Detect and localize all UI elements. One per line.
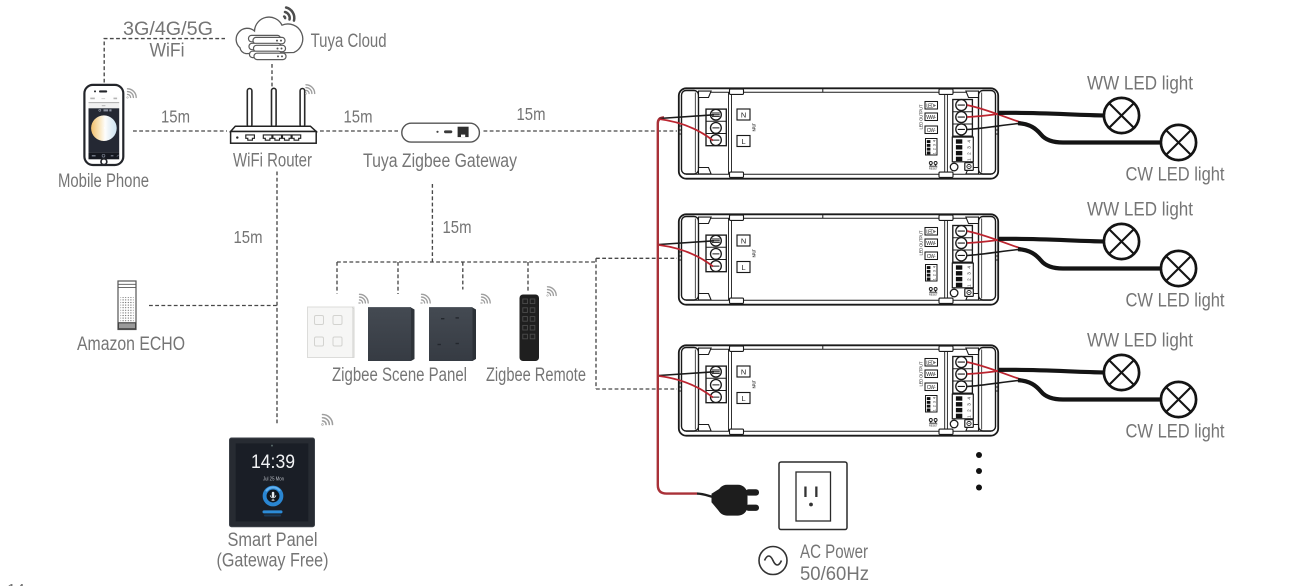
svg-text:15m: 15m xyxy=(344,107,373,127)
svg-text:AC Power: AC Power xyxy=(800,542,869,563)
svg-text:Jul 25 Mon: Jul 25 Mon xyxy=(263,477,284,483)
svg-text:50/60Hz: 50/60Hz xyxy=(800,564,869,585)
svg-text:14:39: 14:39 xyxy=(251,452,295,473)
svg-text:3G/4G/5G: 3G/4G/5G xyxy=(123,19,213,40)
svg-text:WiFi Router: WiFi Router xyxy=(233,151,313,172)
svg-text:(Gateway Free): (Gateway Free) xyxy=(217,551,329,572)
svg-text:15m: 15m xyxy=(234,227,263,247)
svg-text:Zigbee Remote: Zigbee Remote xyxy=(486,365,586,386)
svg-text:Zigbee Scene Panel: Zigbee Scene Panel xyxy=(332,365,467,386)
svg-text:15m: 15m xyxy=(161,107,190,127)
svg-text:15m: 15m xyxy=(443,217,472,237)
svg-text:WiFi: WiFi xyxy=(150,41,185,62)
svg-text:Tuya Zigbee Gateway: Tuya Zigbee Gateway xyxy=(363,151,517,172)
svg-text:15m: 15m xyxy=(517,104,546,124)
svg-text:Mobile Phone: Mobile Phone xyxy=(58,171,149,192)
svg-text:14: 14 xyxy=(7,582,25,586)
svg-text:Smart Panel: Smart Panel xyxy=(228,530,318,551)
svg-text:Amazon ECHO: Amazon ECHO xyxy=(77,334,185,355)
svg-text:Tuya Cloud: Tuya Cloud xyxy=(311,31,387,52)
